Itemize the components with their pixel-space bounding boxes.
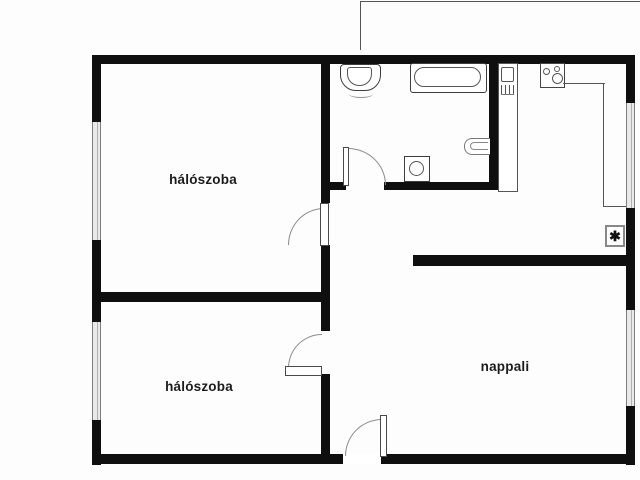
wall-bathroom-right: [489, 55, 498, 190]
kitchen-counter-edge-right: [603, 83, 604, 207]
top-leader-line-horizontal: [360, 1, 640, 2]
window-pane: [631, 103, 632, 208]
window-pane: [631, 310, 632, 406]
room-label-bedroom-2: hálószoba: [139, 379, 259, 394]
kitchen-counter-edge-top: [563, 83, 605, 84]
wall-central-vertical-lower: [321, 374, 330, 464]
boiler-asterisk-symbol: ✱: [608, 228, 622, 245]
window-right-lower: [626, 310, 635, 406]
bathroom-door-arc: [348, 148, 386, 185]
bedroom-2-door-arc: [288, 334, 322, 368]
room-label-bedroom-1: hálószoba: [143, 172, 263, 187]
washing-machine-drum: [409, 161, 424, 176]
bedroom-1-door-leaf: [320, 203, 329, 246]
window-pane: [97, 322, 98, 420]
room-label-living-room: nappali: [445, 359, 565, 374]
top-leader-line-vertical: [360, 1, 361, 50]
stove-burner-small-left: [543, 68, 550, 75]
bathtub: [410, 63, 487, 93]
stove-burner-large: [552, 73, 563, 84]
stove: [540, 63, 565, 88]
toilet-bowl: [470, 142, 488, 150]
wall-bathroom-bottom-right: [384, 182, 489, 190]
stove-burner-small-right: [554, 66, 560, 72]
boiler-box: ✱: [605, 225, 625, 247]
bedroom-1-door-arc: [288, 208, 324, 245]
window-right-upper: [626, 103, 635, 208]
washbasin-bowl: [347, 67, 372, 86]
floor-plan-canvas: ✱ hálószoba hálószoba nappali: [0, 0, 640, 480]
kitchen-sink-drainer: [501, 85, 514, 95]
entrance-door-leaf: [380, 415, 387, 457]
toilet: [464, 138, 490, 155]
bathroom-door-leaf: [343, 147, 349, 186]
entrance-door-arc: [345, 419, 382, 456]
bedroom-2-door-leaf: [285, 366, 322, 376]
wall-central-vertical-middle: [321, 245, 330, 331]
window-left-upper: [92, 122, 101, 240]
window-pane: [97, 122, 98, 240]
wall-central-vertical-upper: [321, 55, 330, 203]
kitchen-sink-basin: [501, 67, 514, 82]
washbasin: [340, 64, 381, 91]
wall-living-room-top: [413, 255, 635, 266]
washing-machine: [404, 156, 430, 182]
washbasin-pedestal: [349, 90, 373, 98]
wall-bedroom-divider: [101, 292, 321, 302]
kitchen-sink-cabinet: [498, 63, 518, 192]
bathtub-inner: [414, 67, 481, 87]
window-left-lower: [92, 322, 101, 420]
kitchen-counter-edge-bottom: [603, 206, 626, 207]
